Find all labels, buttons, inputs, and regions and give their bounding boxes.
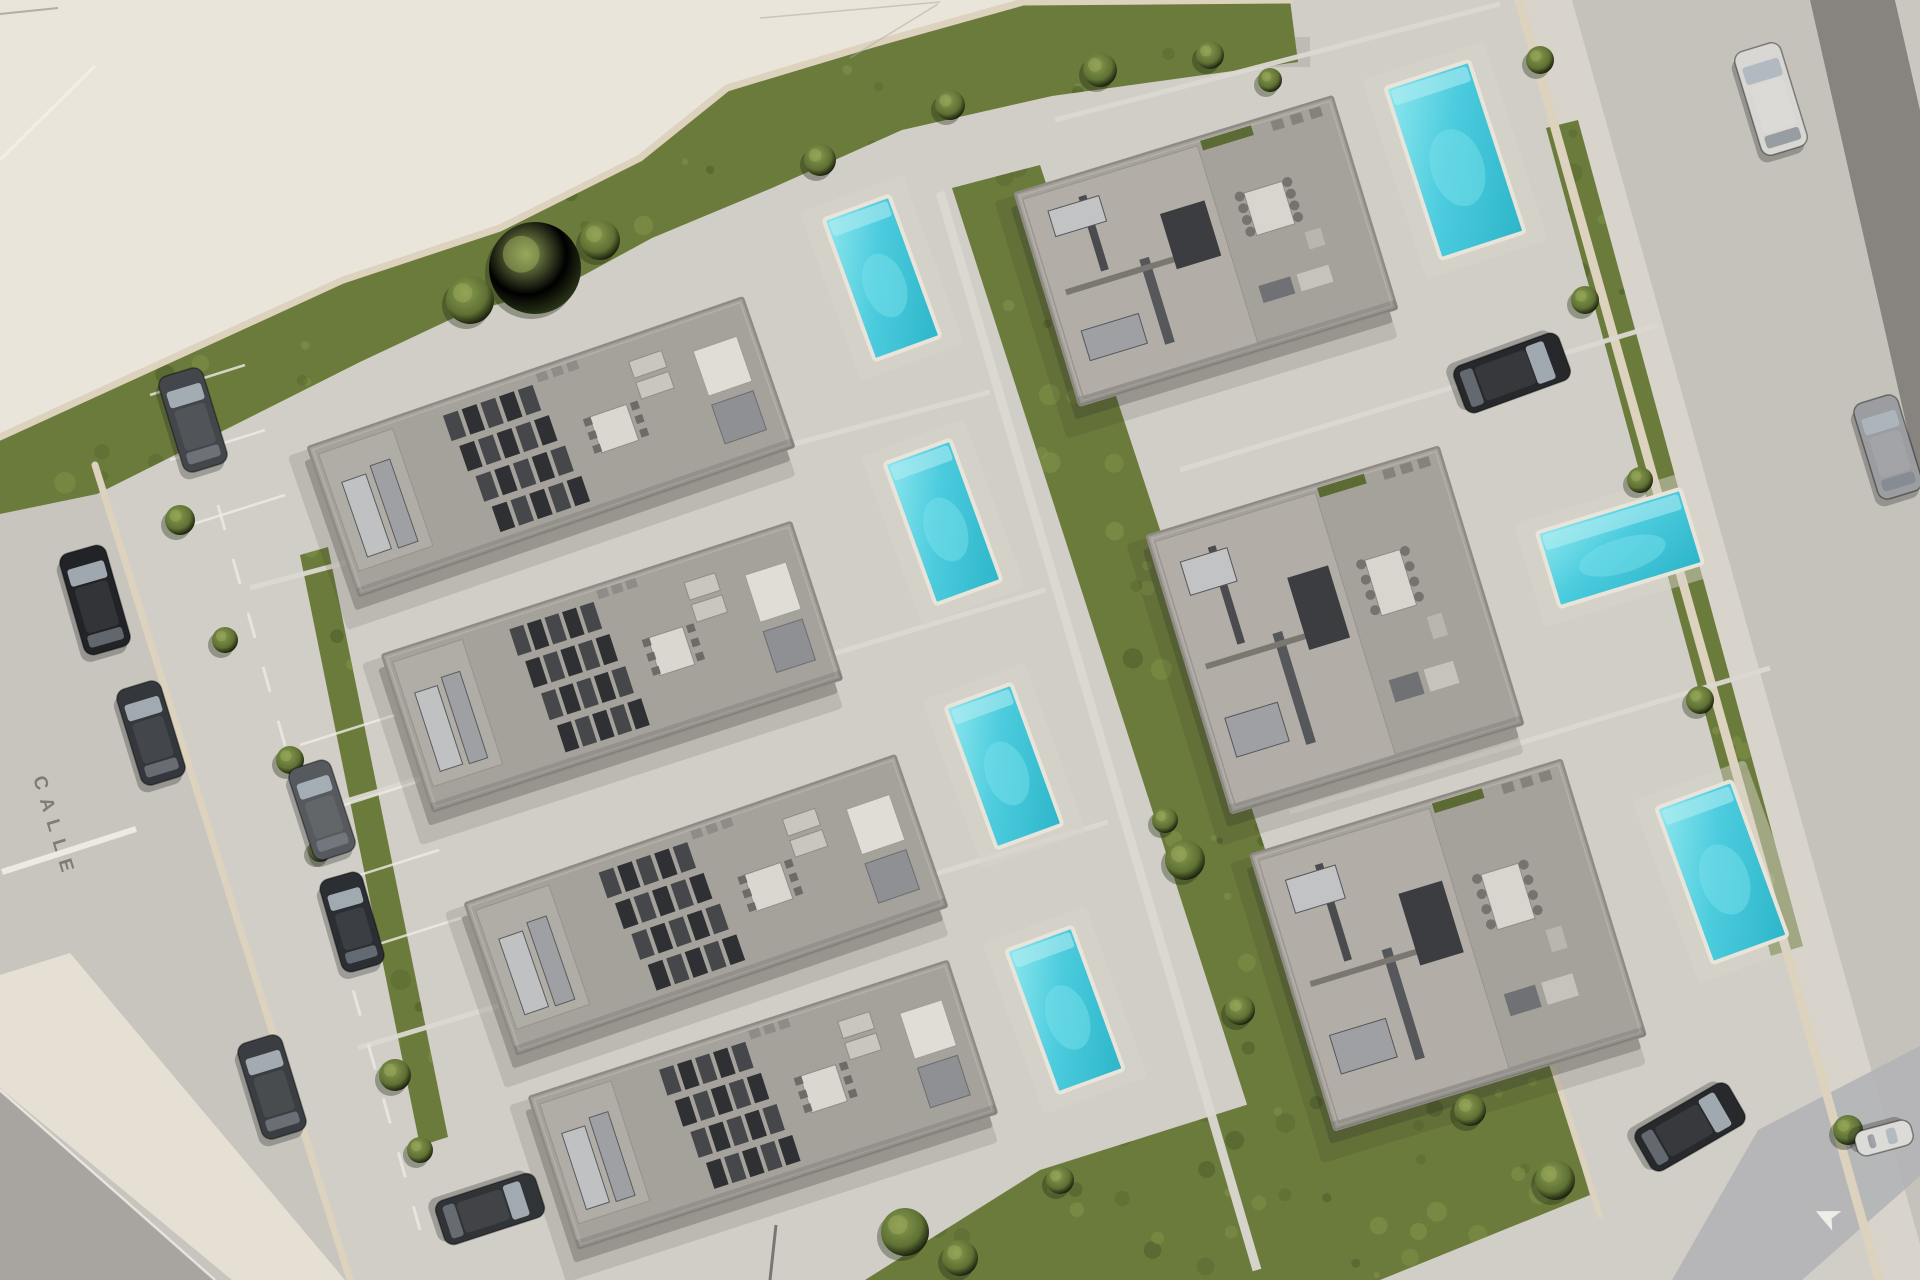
bush-foliage [942, 1240, 978, 1276]
bush-highlight [1541, 1166, 1557, 1182]
bush-foliage [407, 1137, 433, 1163]
bush-foliage [1627, 467, 1653, 493]
bush-foliage [1535, 1160, 1575, 1200]
bush-highlight [453, 283, 472, 302]
bush-highlight [940, 95, 952, 107]
bush-highlight [1631, 471, 1641, 481]
bush-foliage [1046, 1166, 1074, 1194]
bush-highlight [1838, 1120, 1850, 1132]
bush-foliage [1152, 807, 1178, 833]
bush-highlight [1575, 290, 1586, 301]
bush-foliage [165, 505, 195, 535]
bush-highlight [1262, 72, 1272, 82]
bush-foliage [212, 627, 238, 653]
aerial-scene: CALLE ➤ [0, 0, 1920, 1280]
bush-foliage [1165, 840, 1205, 880]
bush-highlight [280, 750, 291, 761]
bush-foliage [1526, 46, 1554, 74]
bush-highlight [384, 1064, 397, 1077]
bush-highlight [1050, 1170, 1061, 1181]
bush-foliage [881, 1208, 929, 1256]
bush-foliage [935, 90, 965, 120]
bush-highlight [1156, 811, 1166, 821]
tree-highlight [503, 236, 540, 273]
scene-layer [0, 0, 1920, 1280]
bush-foliage [379, 1059, 411, 1091]
bush-highlight [1530, 50, 1541, 61]
bush-foliage [1196, 41, 1224, 69]
bush-highlight [1171, 846, 1187, 862]
bush-foliage [1454, 1094, 1486, 1126]
bush-foliage [580, 220, 620, 260]
bush-foliage [1571, 286, 1599, 314]
bush-highlight [170, 510, 182, 522]
bush-highlight [1690, 690, 1701, 701]
bush-highlight [216, 631, 226, 641]
bush-foliage [1083, 53, 1117, 87]
bush-highlight [947, 1245, 961, 1259]
bush-foliage [1225, 995, 1255, 1025]
tree-foliage [489, 222, 581, 314]
bush-highlight [586, 226, 602, 242]
bush-foliage [446, 276, 494, 324]
aerial-development-render: CALLE ➤ [0, 0, 1920, 1280]
bush-highlight [888, 1215, 907, 1234]
bush-foliage [1258, 68, 1282, 92]
bush-highlight [1200, 45, 1211, 56]
bush-highlight [1088, 58, 1102, 72]
bush-highlight [411, 1141, 421, 1151]
bush-highlight [809, 149, 822, 162]
bush-foliage [804, 144, 836, 176]
bush-foliage [1686, 686, 1714, 714]
bush-highlight [1459, 1099, 1472, 1112]
bush-highlight [1230, 1000, 1242, 1012]
